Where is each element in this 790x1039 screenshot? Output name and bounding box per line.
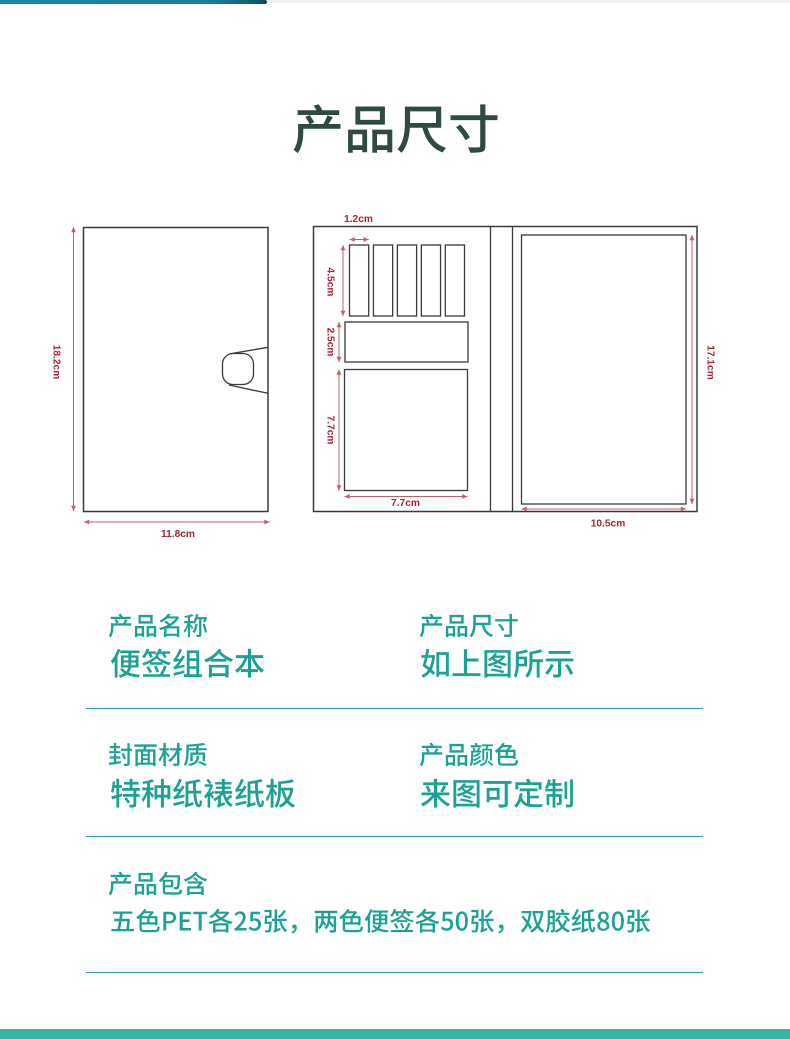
svg-text:17.1cm: 17.1cm	[705, 345, 716, 380]
svg-text:18.2cm: 18.2cm	[51, 345, 62, 380]
svg-text:7.7cm: 7.7cm	[325, 416, 336, 445]
svg-text:1.2cm: 1.2cm	[344, 214, 373, 225]
svg-text:7.7cm: 7.7cm	[391, 498, 420, 509]
svg-text:2.5cm: 2.5cm	[325, 328, 336, 357]
svg-text:11.8cm: 11.8cm	[161, 529, 195, 540]
svg-text:4.5cm: 4.5cm	[325, 268, 336, 297]
svg-text:10.5cm: 10.5cm	[591, 519, 626, 530]
